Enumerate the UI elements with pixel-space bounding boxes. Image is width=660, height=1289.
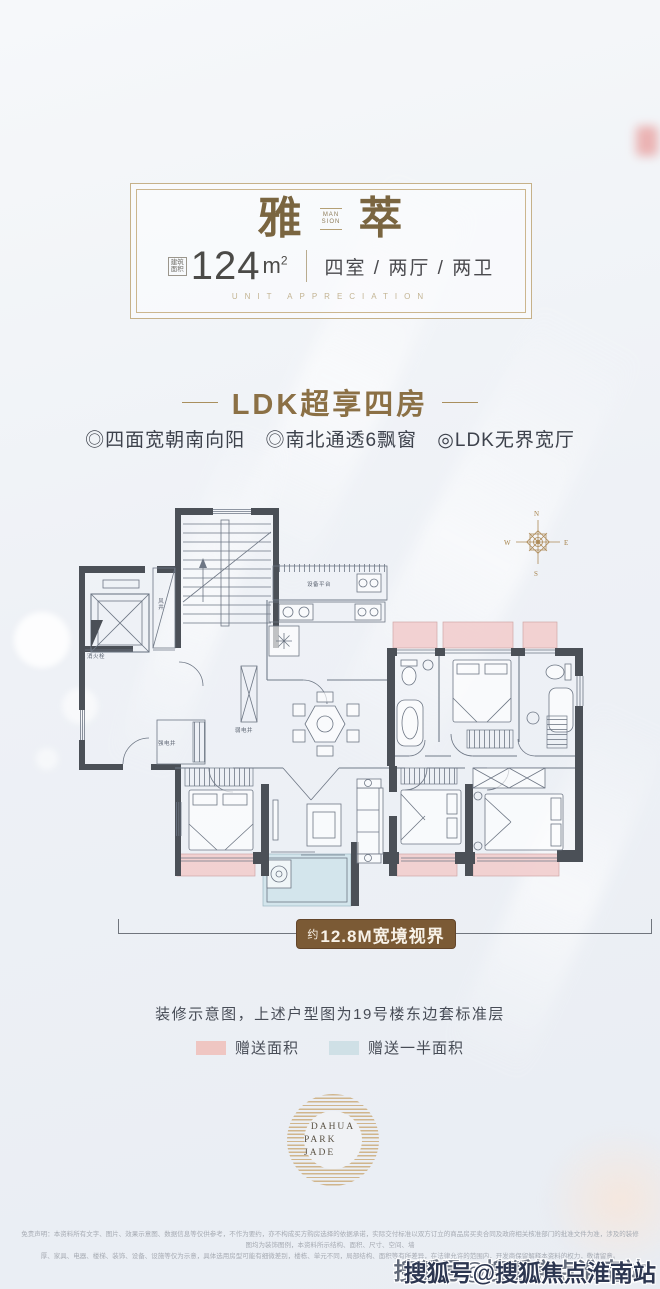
width-bracket-tick-right bbox=[651, 919, 652, 933]
dining-table bbox=[293, 692, 359, 756]
divider bbox=[306, 250, 307, 282]
tv-icon bbox=[273, 800, 278, 840]
legend: 赠送面积 赠送一半面积 bbox=[0, 1037, 660, 1058]
width-banner-value: 12.8M宽境视界 bbox=[320, 922, 444, 947]
floorplan-svg: 风井 消火栓 强电井 弱电井 设备平台 bbox=[57, 502, 657, 922]
wardrobe bbox=[401, 768, 457, 784]
seal-line-1: MAN bbox=[322, 212, 341, 219]
area-label: 建筑 面积 bbox=[168, 257, 187, 276]
balcony bbox=[263, 854, 351, 906]
selling-point: ◎LDK无界宽厅 bbox=[437, 430, 575, 451]
compass-icon: N S W E bbox=[504, 510, 568, 578]
brand-logo-text: DAHUA PARK JADE bbox=[304, 1111, 362, 1169]
area-unit: m2 bbox=[263, 253, 288, 279]
selling-point: ◎南北通透6飘窗 bbox=[265, 430, 417, 451]
selling-headline: LDK超享四房 bbox=[0, 381, 660, 423]
strong-current-shaft: 强电井 bbox=[157, 720, 205, 764]
wardrobe bbox=[185, 768, 253, 786]
unit-card: 雅 MAN SION 萃 建筑 面积 124 m2 四室 / 两厅 / 两卫 U… bbox=[130, 183, 532, 319]
equipment-platform: 设备平台 bbox=[273, 564, 387, 600]
caption: 装修示意图，上述户型图为19号楼东边套标准层 bbox=[0, 1003, 660, 1024]
hall-closet bbox=[547, 716, 567, 748]
disclaimer-line1: 免责声明：本资料所有文字、图片、效果示意图、数据信息等仅供参考，不作为要约，亦不… bbox=[20, 1229, 640, 1251]
width-bracket-tick-left bbox=[118, 919, 119, 933]
watermark-text: 搜狐号@搜狐焦点淮南站 bbox=[404, 1254, 656, 1288]
area-value: 124 bbox=[191, 246, 261, 286]
bed bbox=[189, 790, 253, 850]
brand-name-line1: DAHUA bbox=[311, 1121, 355, 1134]
fridge-icon bbox=[269, 626, 299, 656]
wardrobe bbox=[467, 730, 513, 748]
suite-bathroom-left bbox=[397, 656, 439, 746]
legend-swatch-pink bbox=[196, 1041, 226, 1055]
headline-dash-left bbox=[182, 402, 218, 403]
brand-name-line2: PARK JADE bbox=[304, 1134, 362, 1160]
living-room bbox=[273, 779, 383, 863]
compass-n: N bbox=[534, 510, 539, 518]
compass-e: E bbox=[564, 539, 568, 547]
bokeh-circle bbox=[36, 748, 58, 770]
seal-line-2: SION bbox=[322, 219, 341, 226]
unit-subtitle-en: UNIT APPRECIATION bbox=[131, 292, 531, 301]
legend-swatch-blue bbox=[329, 1041, 359, 1055]
unit-title-char-left: 雅 bbox=[258, 196, 304, 242]
headline-text: LDK超享四房 bbox=[232, 381, 429, 423]
unit-area-row: 建筑 面积 124 m2 四室 / 两厅 / 两卫 bbox=[131, 246, 531, 286]
width-banner-prefix: 约 bbox=[307, 926, 318, 942]
headline-dash-right bbox=[442, 402, 478, 403]
bedroom-bottom-middle bbox=[401, 768, 461, 844]
selling-point: ◎四面宽朝南向阳 bbox=[85, 430, 245, 451]
weak-current-shaft: 弱电井 bbox=[235, 666, 257, 734]
compass-w: W bbox=[504, 539, 511, 547]
bed bbox=[453, 660, 511, 722]
washing-machine-icon bbox=[267, 860, 291, 888]
unit-title-char-right: 萃 bbox=[358, 196, 404, 242]
unit-title-seal: MAN SION bbox=[320, 208, 343, 230]
compass-s: S bbox=[534, 570, 538, 578]
legend-label-gift: 赠送面积 bbox=[235, 1037, 299, 1058]
wardrobe-x bbox=[473, 768, 545, 788]
brand-logo: DAHUA PARK JADE bbox=[287, 1094, 379, 1186]
width-banner: 约 12.8M宽境视界 bbox=[296, 919, 456, 949]
elevator bbox=[91, 580, 149, 652]
red-smudge bbox=[636, 126, 658, 156]
bedroom-bottom-right bbox=[473, 768, 563, 850]
selling-points: ◎四面宽朝南向阳 ◎南北通透6飘窗 ◎LDK无界宽厅 bbox=[0, 425, 660, 452]
room-configuration: 四室 / 两厅 / 两卫 bbox=[325, 253, 495, 280]
wind-shaft: 风井 bbox=[153, 568, 175, 648]
sofa bbox=[357, 779, 383, 863]
fire-hydrant: 消火栓 bbox=[87, 620, 105, 660]
weak-current-label: 弱电井 bbox=[235, 726, 253, 734]
bed bbox=[401, 790, 461, 844]
suite-bedroom bbox=[453, 660, 513, 748]
equipment-platform-label: 设备平台 bbox=[307, 580, 331, 588]
legend-label-half-gift: 赠送一半面积 bbox=[368, 1037, 464, 1058]
bed bbox=[485, 794, 563, 850]
kitchen bbox=[267, 600, 387, 704]
watermark: 搜狐号@搜狐焦点淮南站 搜狐号@搜狐焦点淮南站 bbox=[258, 1250, 658, 1286]
wind-shaft-label: 风井 bbox=[157, 598, 164, 611]
strong-current-label: 强电井 bbox=[158, 739, 176, 747]
staircase bbox=[183, 520, 271, 626]
bedroom-bottom-left bbox=[185, 768, 253, 850]
fire-hydrant-label: 消火栓 bbox=[87, 652, 105, 660]
unit-title: 雅 MAN SION 萃 bbox=[131, 196, 531, 242]
